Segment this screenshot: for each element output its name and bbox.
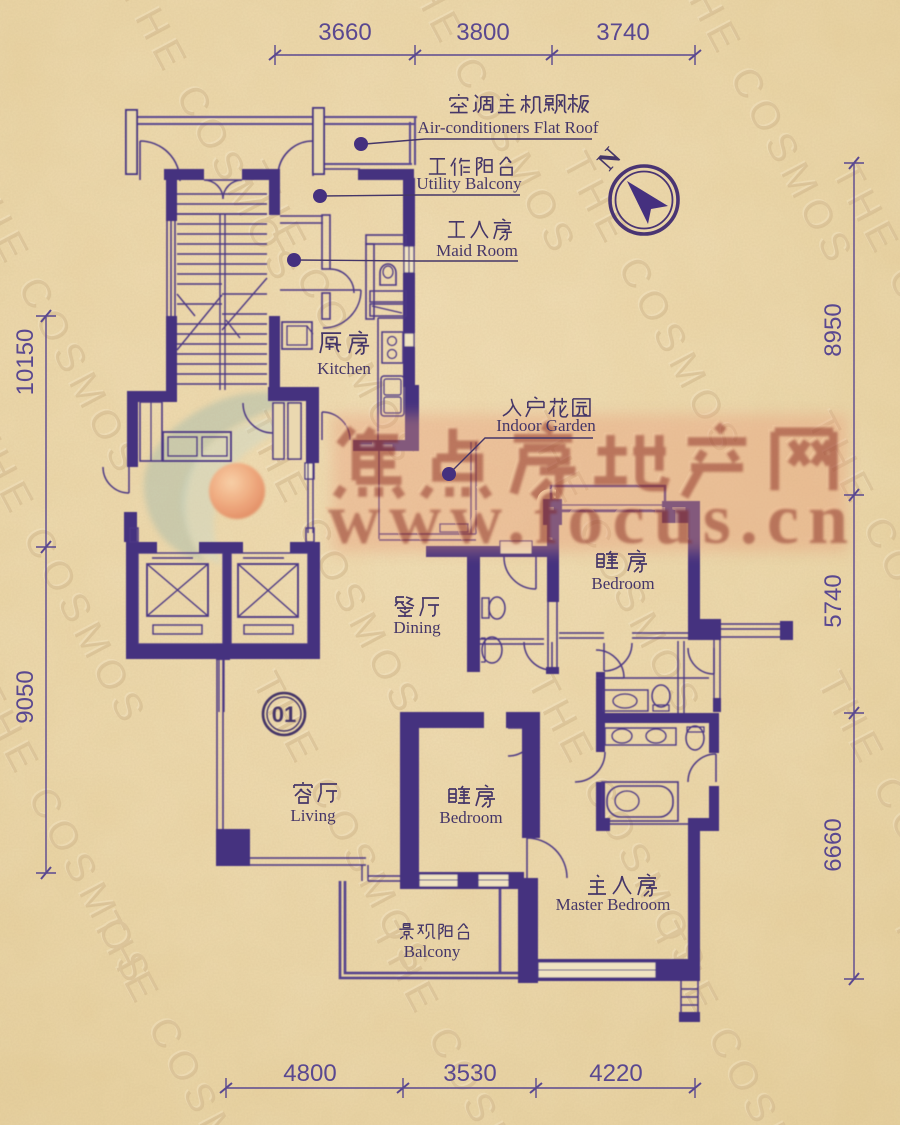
svg-text:Indoor Garden: Indoor Garden [496, 416, 596, 435]
svg-text:Living: Living [290, 806, 336, 825]
svg-text:9050: 9050 [12, 670, 39, 723]
svg-text:4800: 4800 [283, 1060, 336, 1087]
svg-text:4220: 4220 [589, 1060, 642, 1087]
svg-text:5740: 5740 [820, 574, 847, 627]
svg-text:Bedroom: Bedroom [439, 808, 502, 827]
svg-text:Maid Room: Maid Room [436, 241, 518, 260]
svg-text:3660: 3660 [318, 19, 371, 46]
svg-text:Balcony: Balcony [404, 942, 461, 961]
svg-text:3800: 3800 [456, 19, 509, 46]
svg-text:Air-conditioners Flat Roof: Air-conditioners Flat Roof [418, 118, 599, 137]
svg-text:www.focus.cn: www.focus.cn [328, 479, 848, 559]
svg-text:Bedroom: Bedroom [591, 574, 654, 593]
svg-text:Master Bedroom: Master Bedroom [556, 895, 671, 914]
svg-text:10150: 10150 [12, 329, 39, 396]
svg-text:01: 01 [272, 702, 296, 727]
svg-text:8950: 8950 [820, 303, 847, 356]
svg-text:Dining: Dining [393, 618, 441, 637]
svg-text:Kitchen: Kitchen [317, 359, 371, 378]
svg-text:Utility Balcony: Utility Balcony [416, 174, 522, 193]
svg-text:3740: 3740 [596, 19, 649, 46]
svg-text:6660: 6660 [820, 818, 847, 871]
svg-text:3530: 3530 [443, 1060, 496, 1087]
